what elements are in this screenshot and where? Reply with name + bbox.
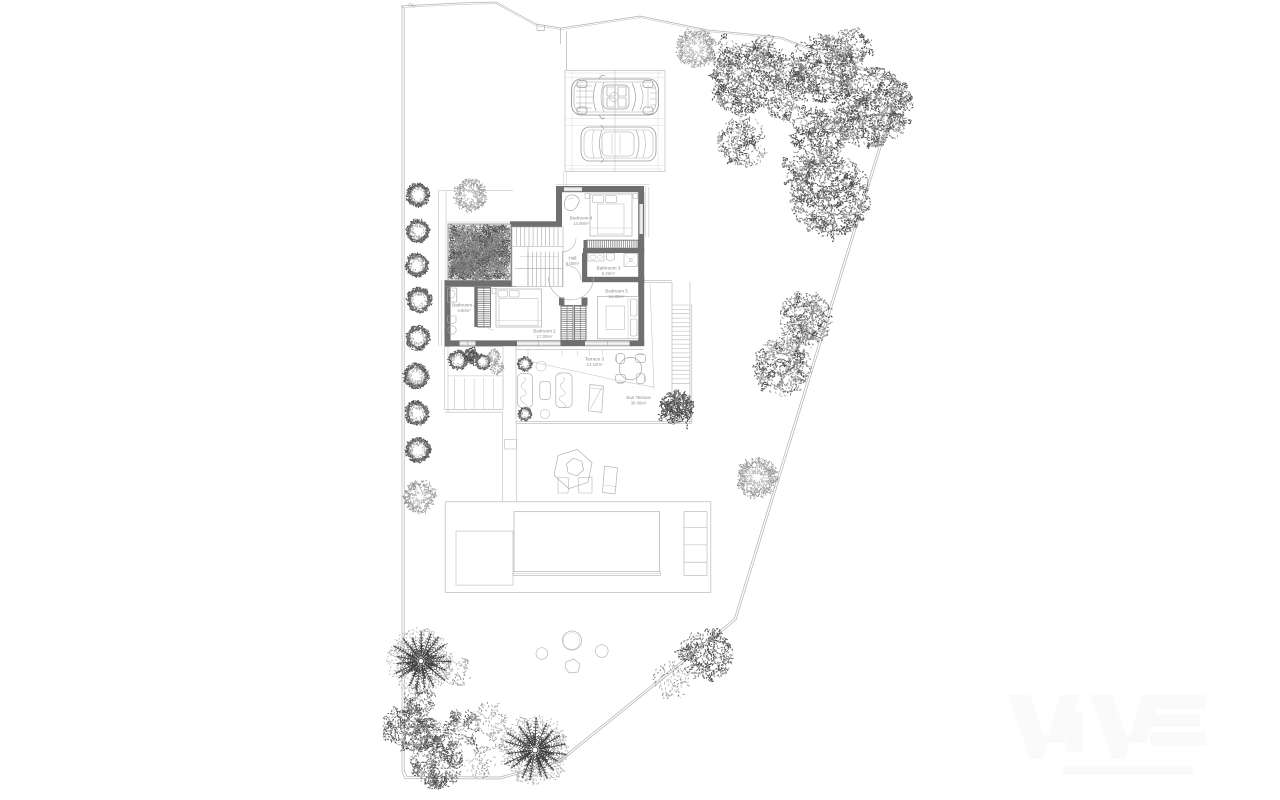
svg-text:13.10m²: 13.10m² xyxy=(587,362,603,367)
svg-text:Hall: Hall xyxy=(569,256,577,261)
svg-text:Bedroom 3: Bedroom 3 xyxy=(605,289,628,294)
svg-text:12.80m²: 12.80m² xyxy=(609,294,625,299)
svg-text:Sun Terrace: Sun Terrace xyxy=(626,395,651,400)
svg-text:17.00m²: 17.00m² xyxy=(537,334,553,339)
svg-text:Bedroom 2: Bedroom 2 xyxy=(533,329,556,334)
svg-text:4.80m²: 4.80m² xyxy=(457,308,471,313)
svg-text:14.90m²: 14.90m² xyxy=(573,221,589,226)
svg-text:Bathroom 2: Bathroom 2 xyxy=(452,303,476,308)
svg-text:Bedroom 4: Bedroom 4 xyxy=(570,216,593,221)
svg-text:30.40m²: 30.40m² xyxy=(631,401,647,406)
svg-text:Terrace 3: Terrace 3 xyxy=(585,357,605,362)
svg-text:5.20m²: 5.20m² xyxy=(602,271,616,276)
svg-text:5.00m²: 5.00m² xyxy=(566,261,580,266)
svg-text:Bathroom 3: Bathroom 3 xyxy=(597,266,621,271)
